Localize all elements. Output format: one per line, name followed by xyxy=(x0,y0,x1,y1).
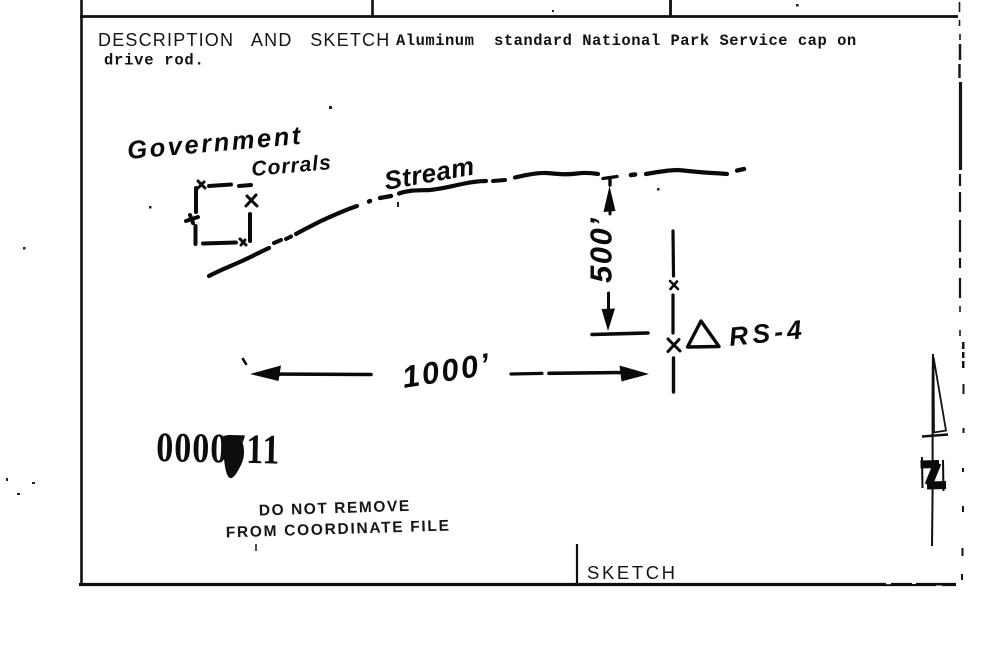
svg-text:1000’: 1000’ xyxy=(400,346,494,395)
svg-text:DO NOT REMOVE: DO NOT REMOVE xyxy=(259,498,411,520)
svg-text:RS-4: RS-4 xyxy=(727,314,807,352)
svg-text:0000711: 0000711 xyxy=(156,425,281,474)
svg-text:Corrals: Corrals xyxy=(250,151,332,181)
svg-text:drive rod.: drive rod. xyxy=(104,52,205,70)
svg-text:Aluminum standard National Pa: Aluminum standard National Park Service … xyxy=(396,32,857,50)
svg-text:DESCRIPTION AND SKETCH: DESCRIPTION AND SKETCH xyxy=(98,30,390,50)
svg-text:SKETCH: SKETCH xyxy=(587,562,678,583)
svg-text:500’: 500’ xyxy=(584,217,619,283)
svg-text:FROM COORDINATE FILE: FROM COORDINATE FILE xyxy=(226,517,451,541)
